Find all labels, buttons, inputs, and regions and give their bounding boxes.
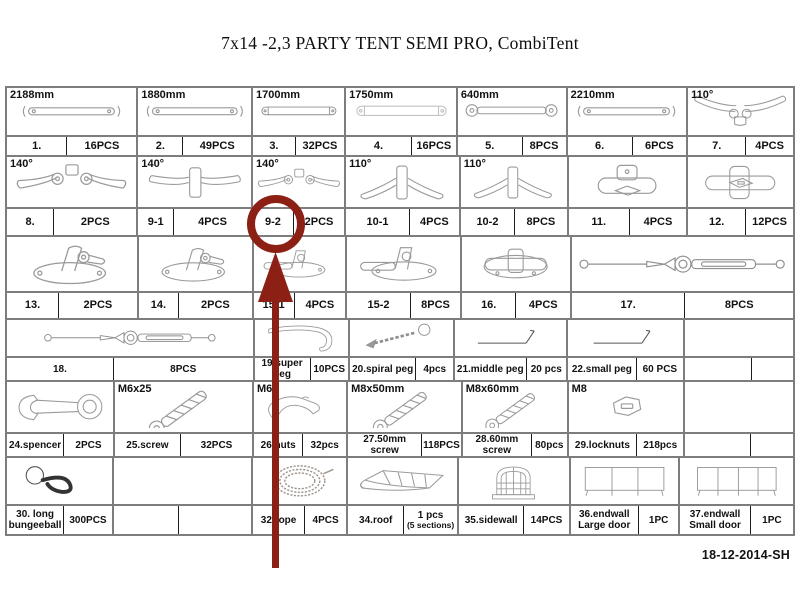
thread-size-label: M8x60mm: [466, 383, 519, 395]
part-cell-9-2: 140° 9-2 2PCS: [253, 157, 346, 235]
part-11-drawing: [569, 157, 687, 209]
angle-label: 110°: [691, 89, 713, 101]
part-10-1-labels: 10-1 4PCS: [346, 209, 459, 235]
part-28-labels: 28.60mm screw 80pcs: [463, 434, 567, 456]
part-qty: 300PCS: [63, 506, 112, 534]
part-qty: 4PCS: [515, 293, 570, 318]
part-number: 36.endwall Large door: [571, 506, 638, 534]
peg-icon: [573, 323, 679, 353]
part-qty: 12PCS: [745, 209, 793, 235]
part-number: 17.: [572, 293, 684, 318]
part-19-drawing: [255, 320, 348, 358]
part-qty: 2PCS: [178, 293, 251, 318]
part-9-2-drawing: 140°: [253, 157, 344, 209]
part-qty: 2PCS: [53, 209, 136, 235]
foot-plate-side-icon: [257, 242, 341, 286]
part-26-labels: 26.nuts 32pcs: [254, 434, 346, 456]
part-qty: 16PCS: [411, 137, 456, 155]
thread-size-label: M6: [257, 383, 272, 395]
part-30-drawing: [7, 458, 112, 506]
part-24-labels: 24.spencer 2PCS: [7, 434, 113, 456]
sidewall-icon: [463, 462, 564, 500]
part-number: 11.: [569, 209, 629, 235]
empty-cell: [685, 320, 793, 380]
part-14-labels: 14. 2PCS: [139, 293, 252, 318]
part-27-labels: 27.50mm screw 118PCS: [348, 434, 461, 456]
part-qty: 4PCS: [745, 137, 793, 155]
part-cell-16: 16. 4PCS: [462, 237, 572, 318]
part-cell-26: M6 26.nuts 32pcs: [254, 382, 348, 456]
part-number: 34.roof: [348, 506, 403, 534]
part-number: 25.screw: [115, 434, 180, 456]
part-qty-note: (5 sections): [407, 521, 454, 530]
tee-fitting-icon: [573, 162, 681, 203]
part-qty: 8PCS: [514, 209, 566, 235]
part-25-labels: 25.screw 32PCS: [115, 434, 252, 456]
part-cell-17: 17. 8PCS: [572, 237, 793, 318]
part-number: 16.: [462, 293, 516, 318]
part-cell-5: 640mm 5. 8PCS: [458, 88, 568, 155]
part-number: 21.middle peg: [455, 358, 525, 380]
part-number: 22.small peg: [568, 358, 636, 380]
part-qty: 8PCS: [410, 293, 460, 318]
part-qty: 1 pcs (5 sections): [403, 506, 456, 534]
empty-drawing-area: [114, 458, 251, 506]
part-32-drawing: [253, 458, 346, 506]
part-cell-19: 19.super peg 10PCS: [255, 320, 350, 380]
part-qty: 49PCS: [182, 137, 251, 155]
bungee-ball-icon: [11, 462, 107, 500]
part-number: 35.sidewall: [459, 506, 524, 534]
band-corner-fittings: 140° 8. 2PCS 140° 9-1 4PCS 140°: [7, 157, 793, 237]
part-11-labels: 11. 4PCS: [569, 209, 687, 235]
empty-part-qty: [178, 506, 251, 534]
part-qty: 10PCS: [310, 358, 348, 380]
part-32-labels: 32.rope 4PCS: [253, 506, 346, 534]
part-qty: 8PCS: [522, 137, 566, 155]
part-1-labels: 1. 16PCS: [7, 137, 136, 155]
part-16-labels: 16. 4PCS: [462, 293, 570, 318]
thread-size-label: M8x50mm: [351, 383, 404, 395]
part-25-drawing: M6x25: [115, 382, 252, 434]
part-number: 18.: [7, 358, 113, 380]
part-29-labels: 29.locknuts 218pcs: [569, 434, 684, 456]
part-6-labels: 6. 6PCS: [568, 137, 687, 155]
part-number: 20.spiral peg: [350, 358, 416, 380]
part-number: 32.rope: [253, 506, 304, 534]
part-36-labels: 36.endwall Large door 1PC: [571, 506, 679, 534]
part-number-highlighted: 9-2: [253, 209, 293, 235]
part-qty: 1PC: [750, 506, 793, 534]
empty-drawing-area: [685, 320, 793, 358]
part-36-drawing: [571, 458, 679, 506]
part-number: 10-2: [461, 209, 514, 235]
part-15-1-labels: 15-1 4PCS: [254, 293, 345, 318]
thread-size-label: M6x25: [118, 383, 152, 395]
part-qty: 4PCS: [173, 209, 251, 235]
part-35-labels: 35.sidewall 14PCS: [459, 506, 569, 534]
part-19-labels: 19.super peg 10PCS: [255, 358, 348, 380]
empty-part-qty: [750, 434, 793, 456]
page-title: 7x14 -2,3 PARTY TENT SEMI PRO, CombiTent: [0, 33, 800, 54]
part-7-drawing: 110°: [688, 88, 793, 137]
part-cell-8: 140° 8. 2PCS: [7, 157, 138, 235]
part-cell-28: M8x60mm 28.60mm screw 80pcs: [463, 382, 569, 456]
part-cell-15-2: 15-2 8PCS: [347, 237, 462, 318]
part-cell-18: 18. 8PCS: [7, 320, 255, 380]
part-15-2-labels: 15-2 8PCS: [347, 293, 460, 318]
part-16-drawing: [462, 237, 570, 293]
parts-sheet-page: { "title": "7x14 -2,3 PARTY TENT SEMI PR…: [0, 0, 800, 600]
part-qty: 2PCS: [293, 209, 344, 235]
part-qty: 6PCS: [632, 137, 687, 155]
dimension-label: 2210mm: [571, 89, 615, 101]
part-9-1-drawing: 140°: [138, 157, 251, 209]
part-30-labels: 30. long bungeeball 300PCS: [7, 506, 112, 534]
part-10-1-drawing: 110°: [346, 157, 459, 209]
band-foot-plates: 13. 2PCS 14. 2PCS 15-1 4PCS: [7, 237, 793, 320]
part-13-labels: 13. 2PCS: [7, 293, 137, 318]
part-cell-27: M8x50mm 27.50mm screw 118PCS: [348, 382, 463, 456]
part-number: 30. long bungeeball: [7, 506, 63, 534]
part-6-drawing: 2210mm: [568, 88, 687, 137]
part-number: 4.: [346, 137, 411, 155]
part-cell-36: 36.endwall Large door 1PC: [571, 458, 681, 534]
part-number: 2.: [138, 137, 182, 155]
part-17-labels: 17. 8PCS: [572, 293, 793, 318]
part-number: 29.locknuts: [569, 434, 637, 456]
part-qty: 4pcs: [415, 358, 453, 380]
part-4-drawing: 1750mm: [346, 88, 456, 137]
part-35-drawing: [459, 458, 569, 506]
part-number: 10-1: [346, 209, 409, 235]
part-21-drawing: [455, 320, 566, 358]
part-cell-10-2: 110° 10-2 8PCS: [461, 157, 569, 235]
part-cell-9-1: 140° 9-1 4PCS: [138, 157, 253, 235]
part-34-labels: 34.roof 1 pcs (5 sections): [348, 506, 457, 534]
part-number: 6.: [568, 137, 632, 155]
part-cell-14: 14. 2PCS: [139, 237, 254, 318]
part-9-1-labels: 9-1 4PCS: [138, 209, 251, 235]
part-13-drawing: [7, 237, 137, 293]
angle-label: 140°: [256, 158, 279, 170]
part-28-drawing: M8x60mm: [463, 382, 567, 434]
part-cell-34: 34.roof 1 pcs (5 sections): [348, 458, 459, 534]
part-cell-25: M6x25 25.screw 32PCS: [115, 382, 254, 456]
part-qty: 14PCS: [523, 506, 568, 534]
part-number: 3.: [253, 137, 295, 155]
empty-cell: [114, 458, 253, 534]
part-cell-2: 1880mm 2. 49PCS: [138, 88, 253, 155]
empty-labels: [114, 506, 251, 534]
part-cell-1: 2188mm 1. 16PCS: [7, 88, 138, 155]
dimension-label: 2188mm: [10, 89, 54, 101]
band-pegs: 18. 8PCS 19.super peg 10PCS 20.spiral pe…: [7, 320, 793, 382]
part-cell-12: 12. 12PCS: [688, 157, 793, 235]
part-number: 12.: [688, 209, 745, 235]
roof-icon: [352, 462, 452, 500]
part-9-2-labels: 9-2 2PCS: [253, 209, 344, 235]
endwall-icon: [685, 462, 789, 500]
part-26-drawing: M6: [254, 382, 346, 434]
part-cell-4: 1750mm 4. 16PCS: [346, 88, 458, 155]
part-qty: 4PCS: [294, 293, 345, 318]
dimension-label: 1750mm: [349, 89, 393, 101]
dimension-label: 1700mm: [256, 89, 300, 101]
part-number: 37.endwall Small door: [680, 506, 749, 534]
part-22-drawing: [568, 320, 683, 358]
part-22-labels: 22.small peg 60 PCS: [568, 358, 683, 380]
part-12-drawing: [688, 157, 793, 209]
part-number: 14.: [139, 293, 179, 318]
part-4-labels: 4. 16PCS: [346, 137, 456, 155]
part-qty: 4PCS: [409, 209, 459, 235]
part-qty: 32PCS: [180, 434, 252, 456]
part-10-2-labels: 10-2 8PCS: [461, 209, 567, 235]
cross-fitting-icon: [692, 162, 788, 203]
part-cell-22: 22.small peg 60 PCS: [568, 320, 685, 380]
angle-label: 140°: [141, 158, 164, 170]
band-poles: 2188mm 1. 16PCS 1880mm 2. 49PCS 1700mm: [7, 88, 793, 157]
band-covers: 30. long bungeeball 300PCS 32.rope 4PCS: [7, 458, 793, 534]
empty-cell: [685, 382, 793, 456]
part-number: 5.: [458, 137, 522, 155]
angle-label: 110°: [464, 158, 486, 170]
part-3-drawing: 1700mm: [253, 88, 344, 137]
part-cell-30: 30. long bungeeball 300PCS: [7, 458, 114, 534]
empty-drawing-area: [685, 382, 793, 434]
angle-label: 110°: [349, 158, 371, 170]
part-18-labels: 18. 8PCS: [7, 358, 253, 380]
part-5-drawing: 640mm: [458, 88, 566, 137]
part-qty: 32pcs: [302, 434, 346, 456]
part-qty: 8PCS: [113, 358, 253, 380]
part-7-labels: 7. 4PCS: [688, 137, 793, 155]
part-37-labels: 37.endwall Small door 1PC: [680, 506, 793, 534]
part-cell-35: 35.sidewall 14PCS: [459, 458, 571, 534]
part-number: 1.: [7, 137, 66, 155]
part-24-drawing: [7, 382, 113, 434]
peg-icon: [459, 323, 561, 353]
empty-part-number: [685, 434, 750, 456]
part-8-labels: 8. 2PCS: [7, 209, 136, 235]
part-cell-10-1: 110° 10-1 4PCS: [346, 157, 461, 235]
empty-labels: [685, 358, 793, 380]
part-qty: 8PCS: [684, 293, 793, 318]
part-qty: 32PCS: [295, 137, 344, 155]
part-cell-37: 37.endwall Small door 1PC: [680, 458, 793, 534]
part-cell-3: 1700mm 3. 32PCS: [253, 88, 346, 155]
part-cell-11: 11. 4PCS: [569, 157, 689, 235]
part-18-drawing: [7, 320, 253, 358]
part-cell-7: 110° 7. 4PCS: [688, 88, 793, 155]
guy-wire-icon: [12, 323, 248, 353]
dimension-label: 1880mm: [141, 89, 185, 101]
part-cell-20: 20.spiral peg 4pcs: [350, 320, 455, 380]
part-cell-15-1: 15-1 4PCS: [254, 237, 347, 318]
part-qty: 80pcs: [531, 434, 567, 456]
angle-label: 140°: [10, 158, 33, 170]
part-20-labels: 20.spiral peg 4pcs: [350, 358, 453, 380]
part-qty: 60 PCS: [636, 358, 683, 380]
part-2-drawing: 1880mm: [138, 88, 251, 137]
part-cell-32: 32.rope 4PCS: [253, 458, 348, 534]
part-34-drawing: [348, 458, 457, 506]
foot-plate-side-icon: [352, 242, 456, 286]
part-number: 8.: [7, 209, 53, 235]
super-peg-icon: [258, 323, 344, 353]
part-qty: 20 pcs: [526, 358, 567, 380]
empty-part-qty: [751, 358, 793, 380]
part-1-drawing: 2188mm: [7, 88, 136, 137]
part-number: 27.50mm screw: [348, 434, 421, 456]
part-number: 28.60mm screw: [463, 434, 531, 456]
wrench-icon: [11, 387, 108, 428]
part-number: 19.super peg: [255, 358, 310, 380]
parts-table: 2188mm 1. 16PCS 1880mm 2. 49PCS 1700mm: [5, 86, 795, 536]
part-qty: 2PCS: [58, 293, 137, 318]
foot-plate-icon: [143, 242, 247, 286]
part-2-labels: 2. 49PCS: [138, 137, 251, 155]
part-15-2-drawing: [347, 237, 460, 293]
part-number: 15-1: [254, 293, 294, 318]
part-15-1-drawing: [254, 237, 345, 293]
part-3-labels: 3. 32PCS: [253, 137, 344, 155]
endwall-icon: [575, 462, 674, 500]
date-code: 18-12-2014-SH: [590, 548, 790, 562]
part-number: 26.nuts: [254, 434, 302, 456]
part-12-labels: 12. 12PCS: [688, 209, 793, 235]
part-qty: 118PCS: [421, 434, 461, 456]
thread-size-label: M8: [572, 383, 587, 395]
part-qty: 2PCS: [63, 434, 113, 456]
part-20-drawing: [350, 320, 453, 358]
empty-part-number: [685, 358, 751, 380]
part-number: 24.spencer: [7, 434, 63, 456]
empty-part-number: [114, 506, 178, 534]
foot-plate-icon: [12, 242, 131, 286]
part-qty: 1PC: [638, 506, 678, 534]
dimension-label: 640mm: [461, 89, 499, 101]
part-qty: 4PCS: [304, 506, 346, 534]
guy-wire-icon: [576, 242, 788, 286]
part-qty: 218pcs: [636, 434, 683, 456]
part-number: 13.: [7, 293, 58, 318]
part-number: 15-2: [347, 293, 410, 318]
part-29-drawing: M8: [569, 382, 684, 434]
empty-labels: [685, 434, 793, 456]
part-37-drawing: [680, 458, 793, 506]
part-qty: 4PCS: [629, 209, 686, 235]
part-cell-24: 24.spencer 2PCS: [7, 382, 115, 456]
locknut-icon: [573, 387, 678, 428]
part-number: 9-1: [138, 209, 173, 235]
part-10-2-drawing: 110°: [461, 157, 567, 209]
part-cell-29: M8 29.locknuts 218pcs: [569, 382, 686, 456]
part-5-labels: 5. 8PCS: [458, 137, 566, 155]
part-cell-6: 2210mm 6. 6PCS: [568, 88, 689, 155]
part-number: 7.: [688, 137, 745, 155]
part-27-drawing: M8x50mm: [348, 382, 461, 434]
part-14-drawing: [139, 237, 252, 293]
part-21-labels: 21.middle peg 20 pcs: [455, 358, 566, 380]
part-cell-13: 13. 2PCS: [7, 237, 139, 318]
part-8-drawing: 140°: [7, 157, 136, 209]
rope-coil-icon: [257, 462, 343, 500]
band-hardware: 24.spencer 2PCS M6x25 25.screw 32PCS M6 …: [7, 382, 793, 458]
foot-plate-tee-icon: [466, 242, 565, 286]
part-qty: 16PCS: [66, 137, 136, 155]
spiral-peg-icon: [354, 323, 449, 353]
part-17-drawing: [572, 237, 793, 293]
part-cell-21: 21.middle peg 20 pcs: [455, 320, 568, 380]
